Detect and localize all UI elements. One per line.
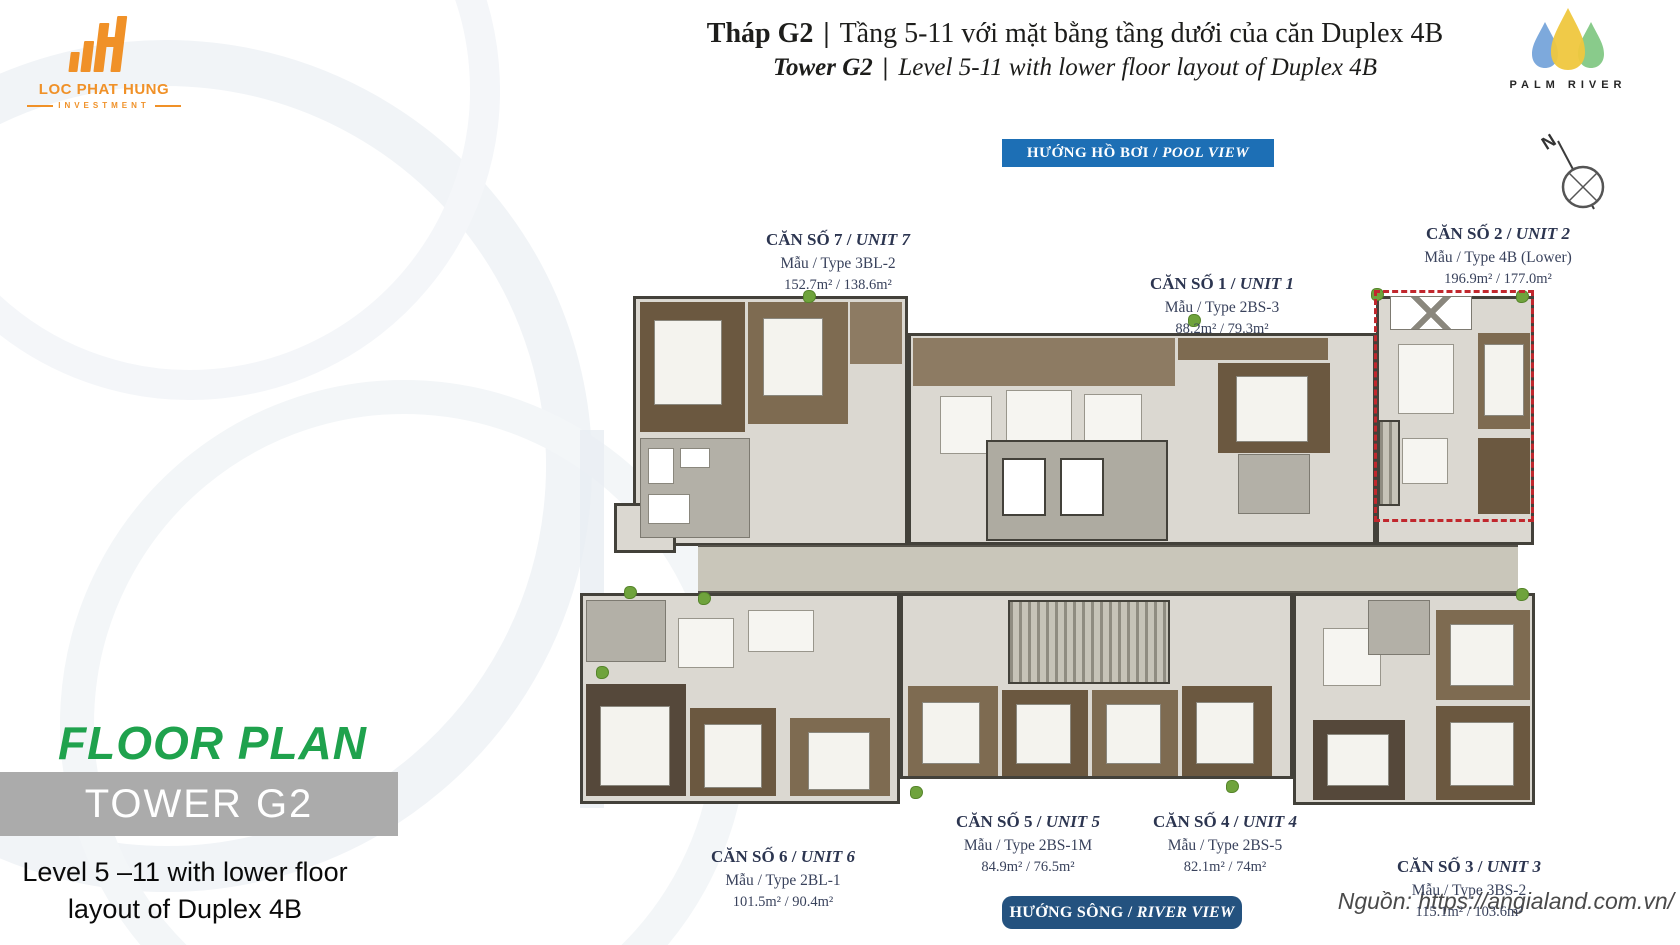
plant-icon xyxy=(910,786,923,799)
title-english: Tower G2|Level 5-11 with lower floor lay… xyxy=(600,52,1550,84)
unit-area: 101.5m² / 90.4m² xyxy=(643,892,923,913)
room-block xyxy=(850,302,902,364)
room-block xyxy=(1016,704,1071,764)
title-vi-text: Tầng 5-11 với mặt bằng tầng dưới của căn… xyxy=(840,18,1444,49)
room-block xyxy=(600,706,670,786)
unit-name: CĂN SỐ 4 / UNIT 4 xyxy=(1085,810,1365,834)
room-block xyxy=(680,448,710,468)
unit-label-6: CĂN SỐ 6 / UNIT 6Mẫu / Type 2BL-1101.5m²… xyxy=(643,845,923,913)
room-block xyxy=(763,318,823,396)
unit-type: Mẫu / Type 2BL-1 xyxy=(643,869,923,892)
left-subtitle: Level 5 –11 with lower floor layout of D… xyxy=(0,854,370,928)
title-separator: | xyxy=(813,18,839,49)
room-block xyxy=(922,702,980,764)
palm-river-logo: PALM RIVER xyxy=(1488,6,1648,91)
page: LOC PHAT HUNG INVESTMENT Tháp G2|Tầng 5-… xyxy=(0,0,1680,945)
plant-icon xyxy=(1226,780,1239,793)
unit-type: Mẫu / Type 3BL-2 xyxy=(698,252,978,275)
lph-logo-icon xyxy=(58,10,150,74)
title-vi-bold: Tháp G2 xyxy=(707,18,814,49)
room-block xyxy=(1450,624,1514,686)
room-block xyxy=(1196,702,1254,764)
room-block xyxy=(808,732,870,790)
room-block xyxy=(1006,390,1072,444)
unit-label-1: CĂN SỐ 1 / UNIT 1Mẫu / Type 2BS-388.2m² … xyxy=(1082,272,1362,340)
room-block xyxy=(648,448,674,484)
room-block xyxy=(1008,600,1170,684)
unit-label-3: CĂN SỐ 3 / UNIT 3Mẫu / Type 3BS-2115.1m²… xyxy=(1329,855,1609,923)
room-block xyxy=(1060,458,1104,516)
unit-area: 88.2m² / 79.3m² xyxy=(1082,319,1362,340)
unit-type: Mẫu / Type 2BS-3 xyxy=(1082,296,1362,319)
title-separator: | xyxy=(873,54,899,81)
unit-area: 82.1m² / 74m² xyxy=(1085,857,1365,878)
lph-logo-sub: INVESTMENT xyxy=(24,101,184,110)
floor-plan-heading: FLOOR PLAN xyxy=(30,716,395,770)
left-subtitle-line2: layout of Duplex 4B xyxy=(0,891,370,928)
palm-river-logo-name: PALM RIVER xyxy=(1488,79,1648,91)
left-subtitle-line1: Level 5 –11 with lower floor xyxy=(0,854,370,891)
dash-line xyxy=(155,105,181,107)
room-block xyxy=(704,724,762,788)
unit-name: CĂN SỐ 6 / UNIT 6 xyxy=(643,845,923,869)
room-block xyxy=(913,338,1175,386)
pool-view-label: HƯỚNG HỒ BƠI / POOL VIEW xyxy=(1027,145,1249,162)
unit-type: Mẫu / Type 2BS-5 xyxy=(1085,834,1365,857)
dash-line xyxy=(27,105,53,107)
unit-label-2: CĂN SỐ 2 / UNIT 2Mẫu / Type 4B (Lower)19… xyxy=(1358,222,1638,290)
unit-label-7: CĂN SỐ 7 / UNIT 7Mẫu / Type 3BL-2152.7m²… xyxy=(698,228,978,296)
pool-view-banner: HƯỚNG HỒ BƠI / POOL VIEW xyxy=(1002,139,1274,167)
title-en-bold: Tower G2 xyxy=(773,54,873,81)
room-block xyxy=(1106,704,1161,764)
unit-name: CĂN SỐ 2 / UNIT 2 xyxy=(1358,222,1638,246)
room-block xyxy=(1450,722,1514,786)
unit-name: CĂN SỐ 7 / UNIT 7 xyxy=(698,228,978,252)
red-dashed-highlight xyxy=(1374,290,1534,522)
unit-type: Mẫu / Type 3BS-2 xyxy=(1329,879,1609,902)
river-view-label: HƯỚNG SÔNG / RIVER VIEW xyxy=(1009,904,1234,922)
room-block xyxy=(748,610,814,652)
floor-plan xyxy=(578,288,1536,806)
lph-logo: LOC PHAT HUNG INVESTMENT xyxy=(24,10,184,110)
room-block xyxy=(1178,338,1328,360)
unit-name: CĂN SỐ 3 / UNIT 3 xyxy=(1329,855,1609,879)
palm-river-logo-icon xyxy=(1493,6,1643,72)
room-block xyxy=(678,618,734,668)
title-vietnamese: Tháp G2|Tầng 5-11 với mặt bằng tầng dưới… xyxy=(600,16,1550,52)
svg-text:N: N xyxy=(1538,130,1560,154)
corridor xyxy=(698,545,1518,593)
page-title: Tháp G2|Tầng 5-11 với mặt bằng tầng dưới… xyxy=(600,16,1550,84)
room-block xyxy=(1368,600,1430,655)
room-block xyxy=(1236,376,1308,442)
room-block xyxy=(1002,458,1046,516)
room-block xyxy=(1238,454,1310,514)
room-block xyxy=(940,396,992,454)
room-block xyxy=(586,600,666,662)
lph-logo-sub-label: INVESTMENT xyxy=(58,101,150,110)
room-block xyxy=(1327,734,1389,786)
tower-banner: TOWER G2 xyxy=(0,772,398,836)
unit-type: Mẫu / Type 4B (Lower) xyxy=(1358,246,1638,269)
unit-name: CĂN SỐ 1 / UNIT 1 xyxy=(1082,272,1362,296)
compass-icon: N xyxy=(1536,123,1616,223)
unit-area: 152.7m² / 138.6m² xyxy=(698,275,978,296)
room-block xyxy=(648,494,690,524)
unit-label-4: CĂN SỐ 4 / UNIT 4Mẫu / Type 2BS-582.1m² … xyxy=(1085,810,1365,878)
title-en-text: Level 5-11 with lower floor layout of Du… xyxy=(898,54,1377,81)
unit-area: 115.1m² / 103.6m² xyxy=(1329,902,1609,923)
unit-area: 196.9m² / 177.0m² xyxy=(1358,269,1638,290)
room-block xyxy=(654,320,722,405)
tower-banner-label: TOWER G2 xyxy=(85,782,314,827)
lph-logo-name: LOC PHAT HUNG xyxy=(24,81,184,98)
river-view-banner: HƯỚNG SÔNG / RIVER VIEW xyxy=(1002,896,1242,929)
